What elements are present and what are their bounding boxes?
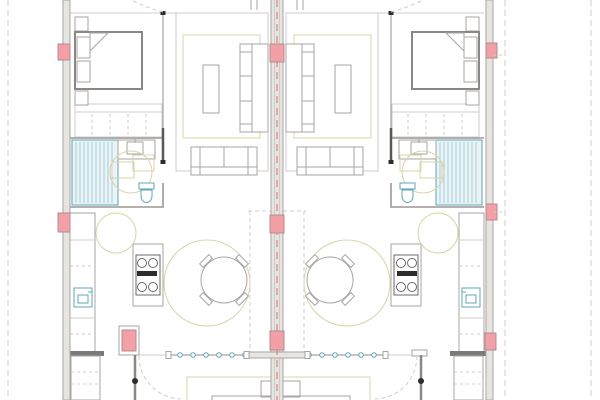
door-swing-top-right: [391, 1, 421, 12]
column: [486, 43, 497, 58]
nightstand: [75, 17, 88, 31]
partition-cap: [389, 160, 394, 164]
glazing-cap: [244, 352, 249, 359]
kitchen-counter-right: [459, 213, 484, 352]
kitchen-sink-left: [74, 288, 92, 307]
glazing-cap: [383, 352, 388, 359]
toilet-bowl-left: [141, 190, 152, 203]
floor-plan: [0, 0, 600, 400]
door-swing-top-left: [133, 1, 163, 12]
wardrobe-right-dividers: [408, 114, 462, 135]
door-post-column: [122, 330, 136, 351]
planter-right: [454, 356, 483, 400]
shower-right: [436, 140, 482, 205]
column: [485, 333, 496, 350]
wardrobe-left: [75, 104, 162, 137]
dining-table-left: [201, 257, 247, 303]
coffee-table-right: [335, 65, 351, 113]
door-swing-left: [139, 356, 181, 399]
planter-left: [71, 356, 100, 400]
toilet-tank-right: [400, 183, 415, 189]
wardrobe-right: [392, 104, 479, 137]
terrace-table: [283, 381, 300, 397]
stool-circle-left: [96, 213, 136, 253]
column: [270, 44, 284, 62]
column: [270, 331, 284, 350]
glazing-cap: [305, 352, 310, 359]
glazing-cap: [166, 352, 171, 359]
sofa-armrest: [240, 124, 252, 132]
nightstand: [75, 91, 88, 105]
door-hinge: [132, 378, 138, 384]
kitchen-sink-right: [462, 288, 480, 307]
door-swing-right: [375, 356, 417, 399]
column: [270, 215, 284, 233]
toilet-bowl-right: [402, 190, 413, 203]
door-hinge: [418, 378, 424, 384]
nightstand: [466, 17, 479, 31]
cooktop-controls: [397, 271, 417, 276]
sofa-armrest: [302, 44, 314, 52]
counter-end-right: [450, 351, 488, 356]
cooktop-controls: [137, 271, 157, 276]
sofa-armrest: [302, 124, 314, 132]
floor-plan-viewport: [0, 0, 600, 400]
door-post-right: [412, 350, 427, 356]
partition-cap: [161, 160, 166, 164]
stool-circle-right: [418, 213, 458, 253]
sofa-back-left: [252, 44, 268, 132]
coffee-table-left: [203, 65, 219, 113]
sofa-seat-right: [302, 51, 314, 125]
sofa-armrest: [240, 44, 252, 52]
kitchen-counter-left: [70, 213, 95, 352]
dining-table-right: [307, 257, 353, 303]
sofa-back-right: [286, 44, 302, 132]
counter-end-left: [66, 351, 104, 356]
nightstand: [466, 91, 479, 105]
column: [58, 213, 70, 232]
toilet-tank-left: [139, 183, 154, 189]
column: [58, 44, 70, 60]
wardrobe-left-dividers: [92, 114, 146, 135]
sofa-seat-left: [240, 51, 252, 125]
basin-counter-left: [118, 140, 155, 159]
shower-left: [72, 140, 118, 205]
basin-counter-right: [399, 140, 436, 159]
